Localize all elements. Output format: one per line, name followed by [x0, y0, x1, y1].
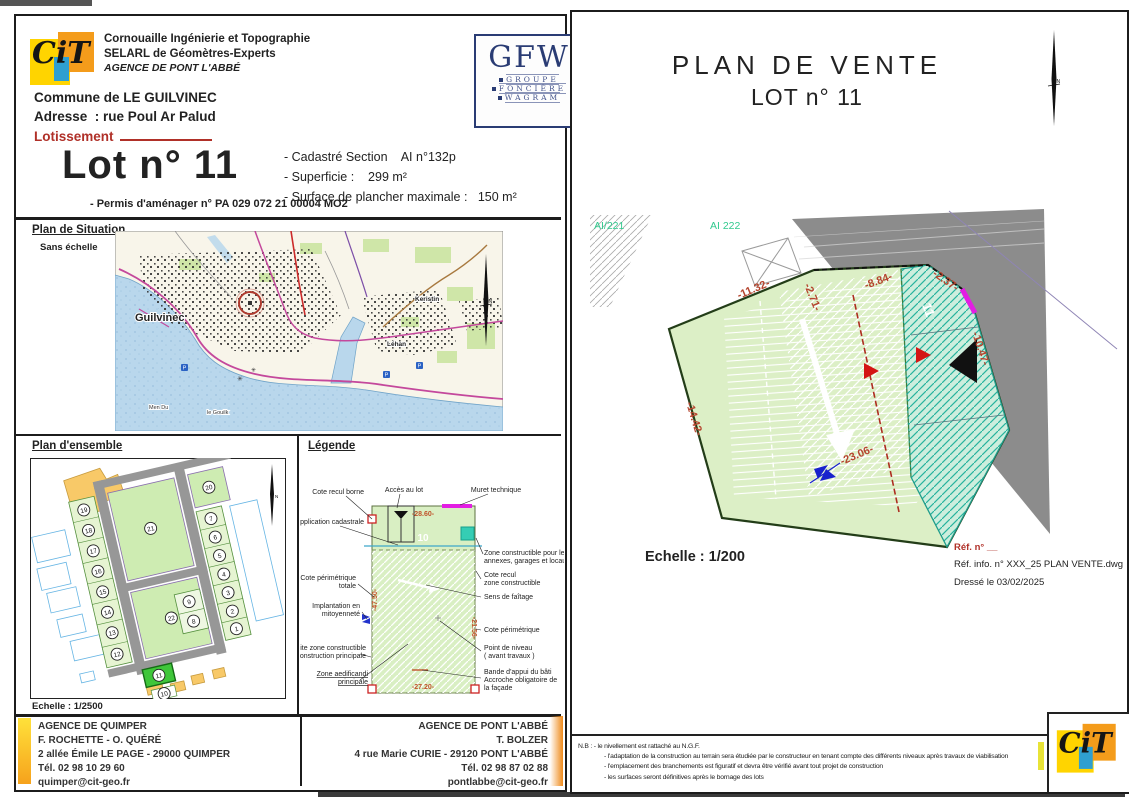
agence-pontlabbe-address: 4 rue Marie CURIE - 29120 PONT L'ABBÉ [312, 748, 548, 762]
svg-text:Application cadastrale: Application cadastrale [300, 519, 364, 526]
right-panel: PLAN DE VENTE LOT n° 11 N [570, 10, 1129, 794]
map-label-lehan: Léhan [387, 341, 406, 348]
nb-strip: N.B : - le nivellement est rattaché au N… [572, 734, 1047, 792]
sale-plan-drawing: -11.32- -2.71- -8.84- -2.37- -10.47- -14… [574, 207, 1125, 572]
company-name: Cornouaille Ingénierie et Topographie [104, 32, 404, 47]
agence-quimper-address: 2 allée Émile LE PAGE - 29000 QUIMPER [38, 748, 230, 762]
ensemble-title: Plan d'ensemble [32, 440, 122, 452]
gfw-word-row: WAGRAM [476, 93, 582, 102]
svg-text:Limite zone constructible: Limite zone constructible [300, 645, 366, 652]
gfw-square-icon [499, 78, 503, 82]
svg-text:Cote recul borne: Cote recul borne [312, 489, 364, 496]
svg-text:-28.60-: -28.60- [412, 511, 435, 518]
agence-pontlabbe-block: AGENCE DE PONT L'ABBÉ T. BOLZER 4 rue Ma… [312, 720, 548, 790]
agence-quimper-phone: Tél. 02 98 10 29 60 [38, 762, 230, 776]
gfw-logo: GFW GROUPE FONCIÈRE WAGRAM [474, 34, 584, 128]
company-type: SELARL de Géomètres-Experts [104, 47, 404, 62]
agence-quimper-block: AGENCE DE QUIMPER F. ROCHETTE - O. QUÉRÉ… [38, 720, 230, 790]
situation-title: Plan de Situation [32, 224, 125, 236]
gfw-acronym: GFW [476, 40, 582, 75]
cadastre-section: - Cadastré Section AI n°132p [284, 147, 517, 167]
cit-logo-script: CiT [1059, 728, 1112, 760]
divider [16, 714, 561, 717]
company-block: Cornouaille Ingénierie et Topographie SE… [104, 32, 404, 76]
svg-text:-47.50-: -47.50- [372, 588, 379, 611]
svg-text:P: P [385, 373, 389, 379]
svg-text:de la construction principale: de la construction principale [300, 653, 366, 660]
nb-accent-bar [1038, 742, 1044, 770]
legend-mitoyennete-marker [362, 614, 370, 624]
svg-text:-21.56-: -21.56- [470, 617, 477, 640]
svg-text:N: N [1057, 79, 1061, 85]
svg-text:Implantation en: Implantation en [312, 603, 360, 610]
scan-edge-top [0, 0, 92, 6]
ref-info: Réf. info. n° XXX_25 PLAN VENTE.dwg [954, 559, 1123, 570]
svg-text:-27.20-: -27.20- [412, 684, 435, 691]
map-label-town: Guilvinec [135, 312, 185, 324]
legend-lot-number: 10 [417, 533, 429, 544]
company-agency: AGENCE DE PONT L'ABBÉ [104, 62, 404, 76]
svg-text:Cote périmétrique: Cote périmétrique [484, 627, 540, 634]
svg-text:mitoyenneté: mitoyenneté [322, 611, 360, 618]
svg-text:N: N [489, 299, 493, 305]
svg-text:Sens de faîtage: Sens de faîtage [484, 594, 533, 601]
agence-quimper-contact: F. ROCHETTE - O. QUÉRÉ [38, 734, 230, 748]
plan-scale: Echelle : 1/200 [645, 549, 745, 565]
rock-icon: ✳ [237, 375, 243, 383]
svg-text:annexes, garages et locaux: annexes, garages et locaux [484, 558, 564, 565]
plan-vente-lot: LOT n° 11 [572, 84, 1042, 111]
svg-text:P: P [418, 364, 422, 370]
nb-line: - l'adaptation de la construction au ter… [604, 752, 1034, 762]
svg-text:la façade: la façade [484, 685, 513, 692]
svg-text:Accès au lot: Accès au lot [385, 487, 423, 494]
lotissement-label: Lotissement [34, 129, 114, 144]
cit-logo: CiT [1055, 722, 1119, 781]
footer-accent-right [550, 716, 563, 786]
parcel-label-ai222: AI 222 [710, 220, 741, 232]
divider [16, 434, 561, 436]
plan-de-vente-document: CiT Cornouaille Ingénierie et Topographi… [0, 0, 1131, 800]
svg-text:Muret technique: Muret technique [471, 487, 521, 494]
divider [300, 714, 302, 786]
north-arrow-icon: N [1046, 30, 1062, 130]
svg-text:P: P [183, 366, 187, 372]
gfw-square-icon [498, 96, 502, 100]
situation-scale: Sans échelle [40, 242, 98, 253]
lotissement-line: Lotissement [34, 129, 212, 144]
permis-line: - Permis d'aménager n° PA 029 072 21 000… [90, 198, 348, 210]
nb-line: N.B : - le nivellement est rattaché au N… [578, 742, 1034, 752]
situation-map: P P P ✳ ✳ Guilvinec Léhan Keristin Men D… [115, 231, 503, 431]
gfw-square-icon [492, 87, 496, 91]
svg-text:Cote recul: Cote recul [484, 572, 516, 579]
logo-box: CiT [1047, 712, 1129, 792]
ensemble-scale: Echelle : 1/2500 [32, 701, 103, 712]
divider [16, 217, 561, 220]
svg-text:Zone aedificandi: Zone aedificandi [317, 671, 369, 678]
agence-pontlabbe-contact: T. BOLZER [312, 734, 548, 748]
legende-diagram: -28.60- -47.50- -21.56- -27.20- 10 Cote … [300, 458, 564, 712]
footer-accent-left [18, 718, 31, 784]
plan-vente-title: PLAN DE VENTE [572, 50, 1042, 81]
lot-title: Lot n° 11 [62, 143, 238, 188]
legend-annexe-square [461, 527, 474, 540]
agence-pontlabbe-phone: Tél. 02 98 87 02 88 [312, 762, 548, 776]
superficie: - Superficie : 299 m² [284, 167, 517, 187]
ref-block: Réf. n° __ Réf. info. n° XXX_25 PLAN VEN… [954, 542, 1123, 588]
svg-text:Bande d'appui du bâti: Bande d'appui du bâti [484, 669, 552, 676]
svg-text:Cote périmétrique: Cote périmétrique [300, 575, 356, 582]
agence-pontlabbe-name: AGENCE DE PONT L'ABBÉ [312, 720, 548, 734]
cit-logo-script: CiT [32, 36, 90, 71]
legend-zone-aedificandi [372, 550, 475, 693]
svg-text:Zone constructible pour les: Zone constructible pour les [484, 550, 564, 557]
gfw-word: WAGRAM [505, 92, 561, 103]
nb-notes: N.B : - le nivellement est rattaché au N… [578, 742, 1034, 783]
svg-text:N: N [275, 494, 278, 499]
commune-line: Commune de LE GUILVINEC [34, 90, 217, 105]
legend-corner-borne [368, 685, 376, 693]
ref-number: Réf. n° __ [954, 542, 1123, 553]
svg-text:totale: totale [339, 583, 356, 590]
lotissement-blank-line [120, 139, 212, 141]
map-label-mendu: Men Du [149, 405, 168, 411]
svg-text:( avant travaux ): ( avant travaux ) [484, 653, 535, 660]
adresse-line: Adresse : rue Poul Ar Palud [34, 109, 216, 124]
svg-text:zone constructible: zone constructible [484, 580, 541, 587]
svg-text:principale: principale [338, 679, 368, 686]
svg-text:Point de niveau: Point de niveau [484, 645, 532, 652]
ref-date: Dressé le 03/02/2025 [954, 577, 1123, 588]
cit-logo: CiT [28, 30, 98, 94]
nb-line: - l'emplacement des branchements est fig… [604, 762, 1034, 772]
divider [297, 434, 299, 714]
legend-corner-borne [471, 685, 479, 693]
left-panel: CiT Cornouaille Ingénierie et Topographi… [14, 14, 567, 792]
agence-pontlabbe-email: pontlabbe@cit-geo.fr [312, 776, 548, 790]
agence-quimper-email: quimper@cit-geo.fr [38, 776, 230, 790]
parcel-label-ai221: AI/221 [594, 220, 625, 232]
agence-quimper-name: AGENCE DE QUIMPER [38, 720, 230, 734]
rock-icon: ✳ [251, 367, 256, 374]
nb-line: - les surfaces seront définitives après … [604, 773, 1034, 783]
map-label-keristin: Keristin [415, 296, 439, 303]
svg-text:Accroche obligatoire de: Accroche obligatoire de [484, 677, 557, 684]
map-label-gouilk: le Gouilk [207, 410, 229, 416]
legende-title: Légende [308, 440, 355, 452]
north-arrow-icon: N [479, 254, 493, 349]
ensemble-plan-drawing: 19 18 17 16 15 14 13 12 7 6 5 4 3 2 1 9 [30, 458, 286, 699]
